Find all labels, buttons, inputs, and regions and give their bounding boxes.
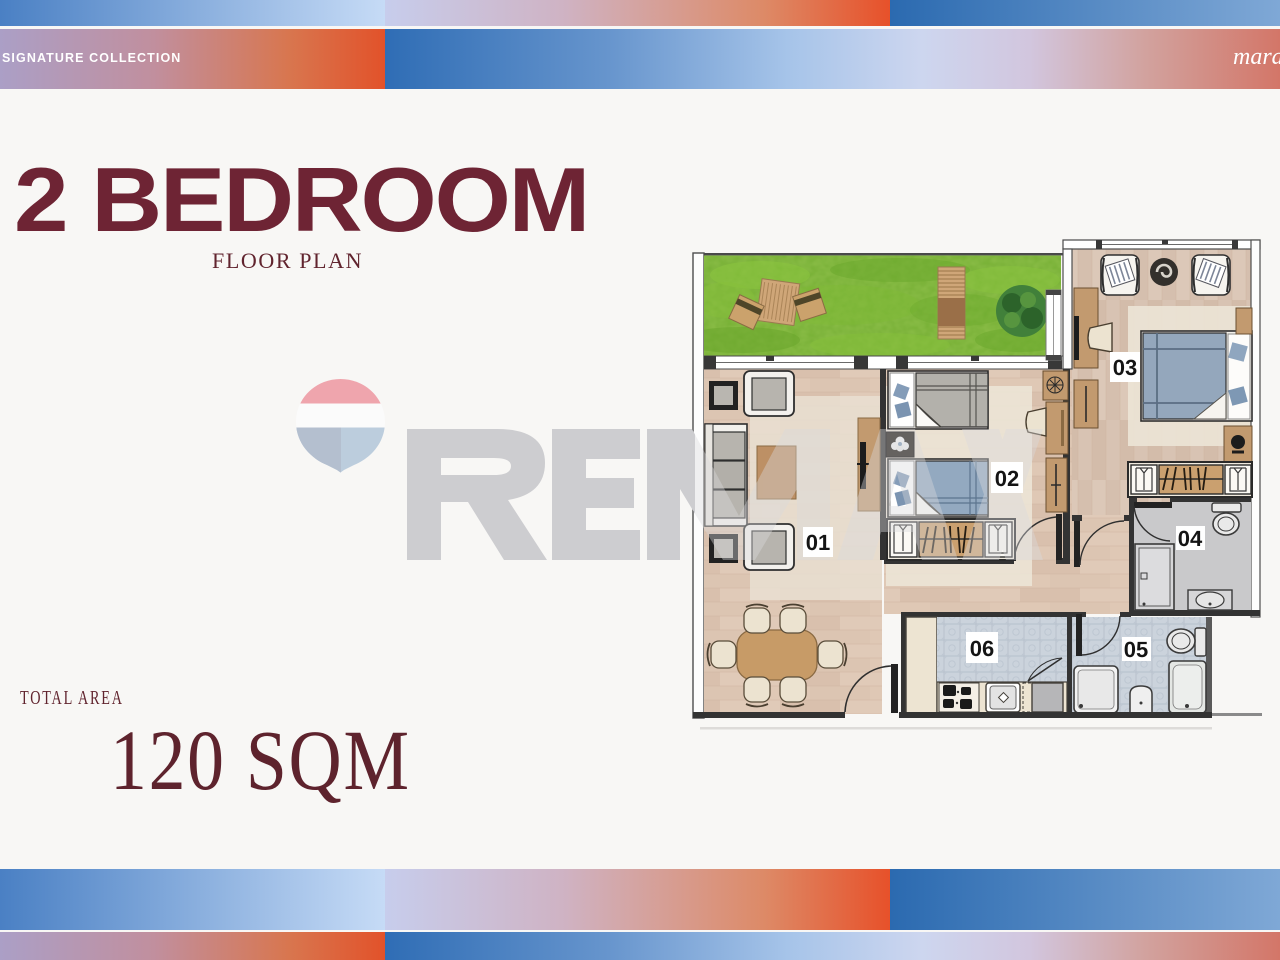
svg-text:05: 05	[1124, 637, 1148, 662]
svg-text:01: 01	[806, 530, 830, 555]
svg-text:03: 03	[1113, 355, 1137, 380]
svg-text:06: 06	[970, 636, 994, 661]
svg-text:04: 04	[1178, 526, 1203, 551]
svg-text:02: 02	[995, 466, 1019, 491]
